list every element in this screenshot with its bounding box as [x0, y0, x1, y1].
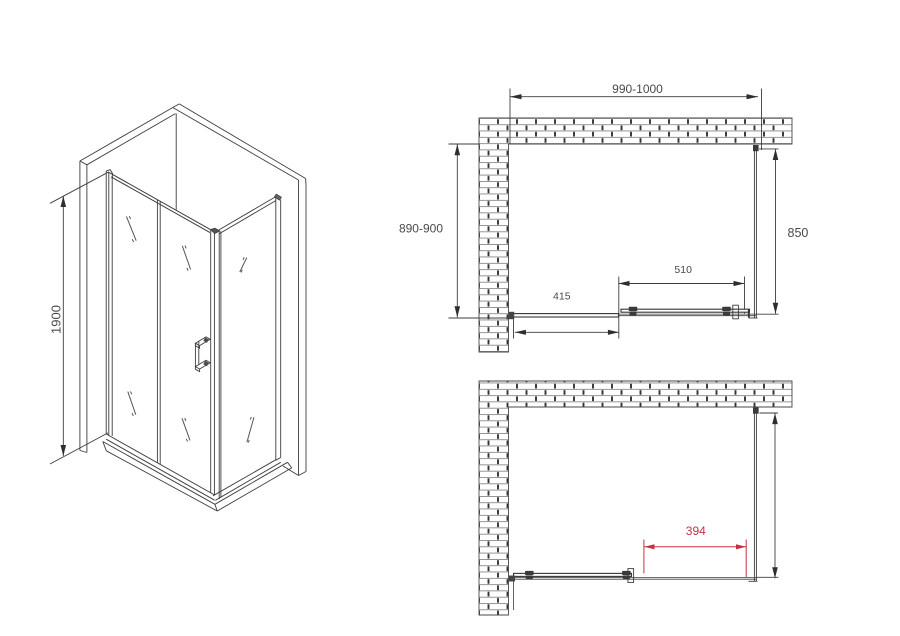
svg-text:1900: 1900 — [48, 305, 63, 334]
svg-text:850: 850 — [788, 226, 809, 240]
svg-text:510: 510 — [674, 264, 692, 276]
svg-text:394: 394 — [686, 524, 706, 538]
svg-text:890-900: 890-900 — [399, 222, 443, 236]
svg-text:415: 415 — [553, 291, 571, 303]
svg-text:990-1000: 990-1000 — [612, 82, 663, 96]
